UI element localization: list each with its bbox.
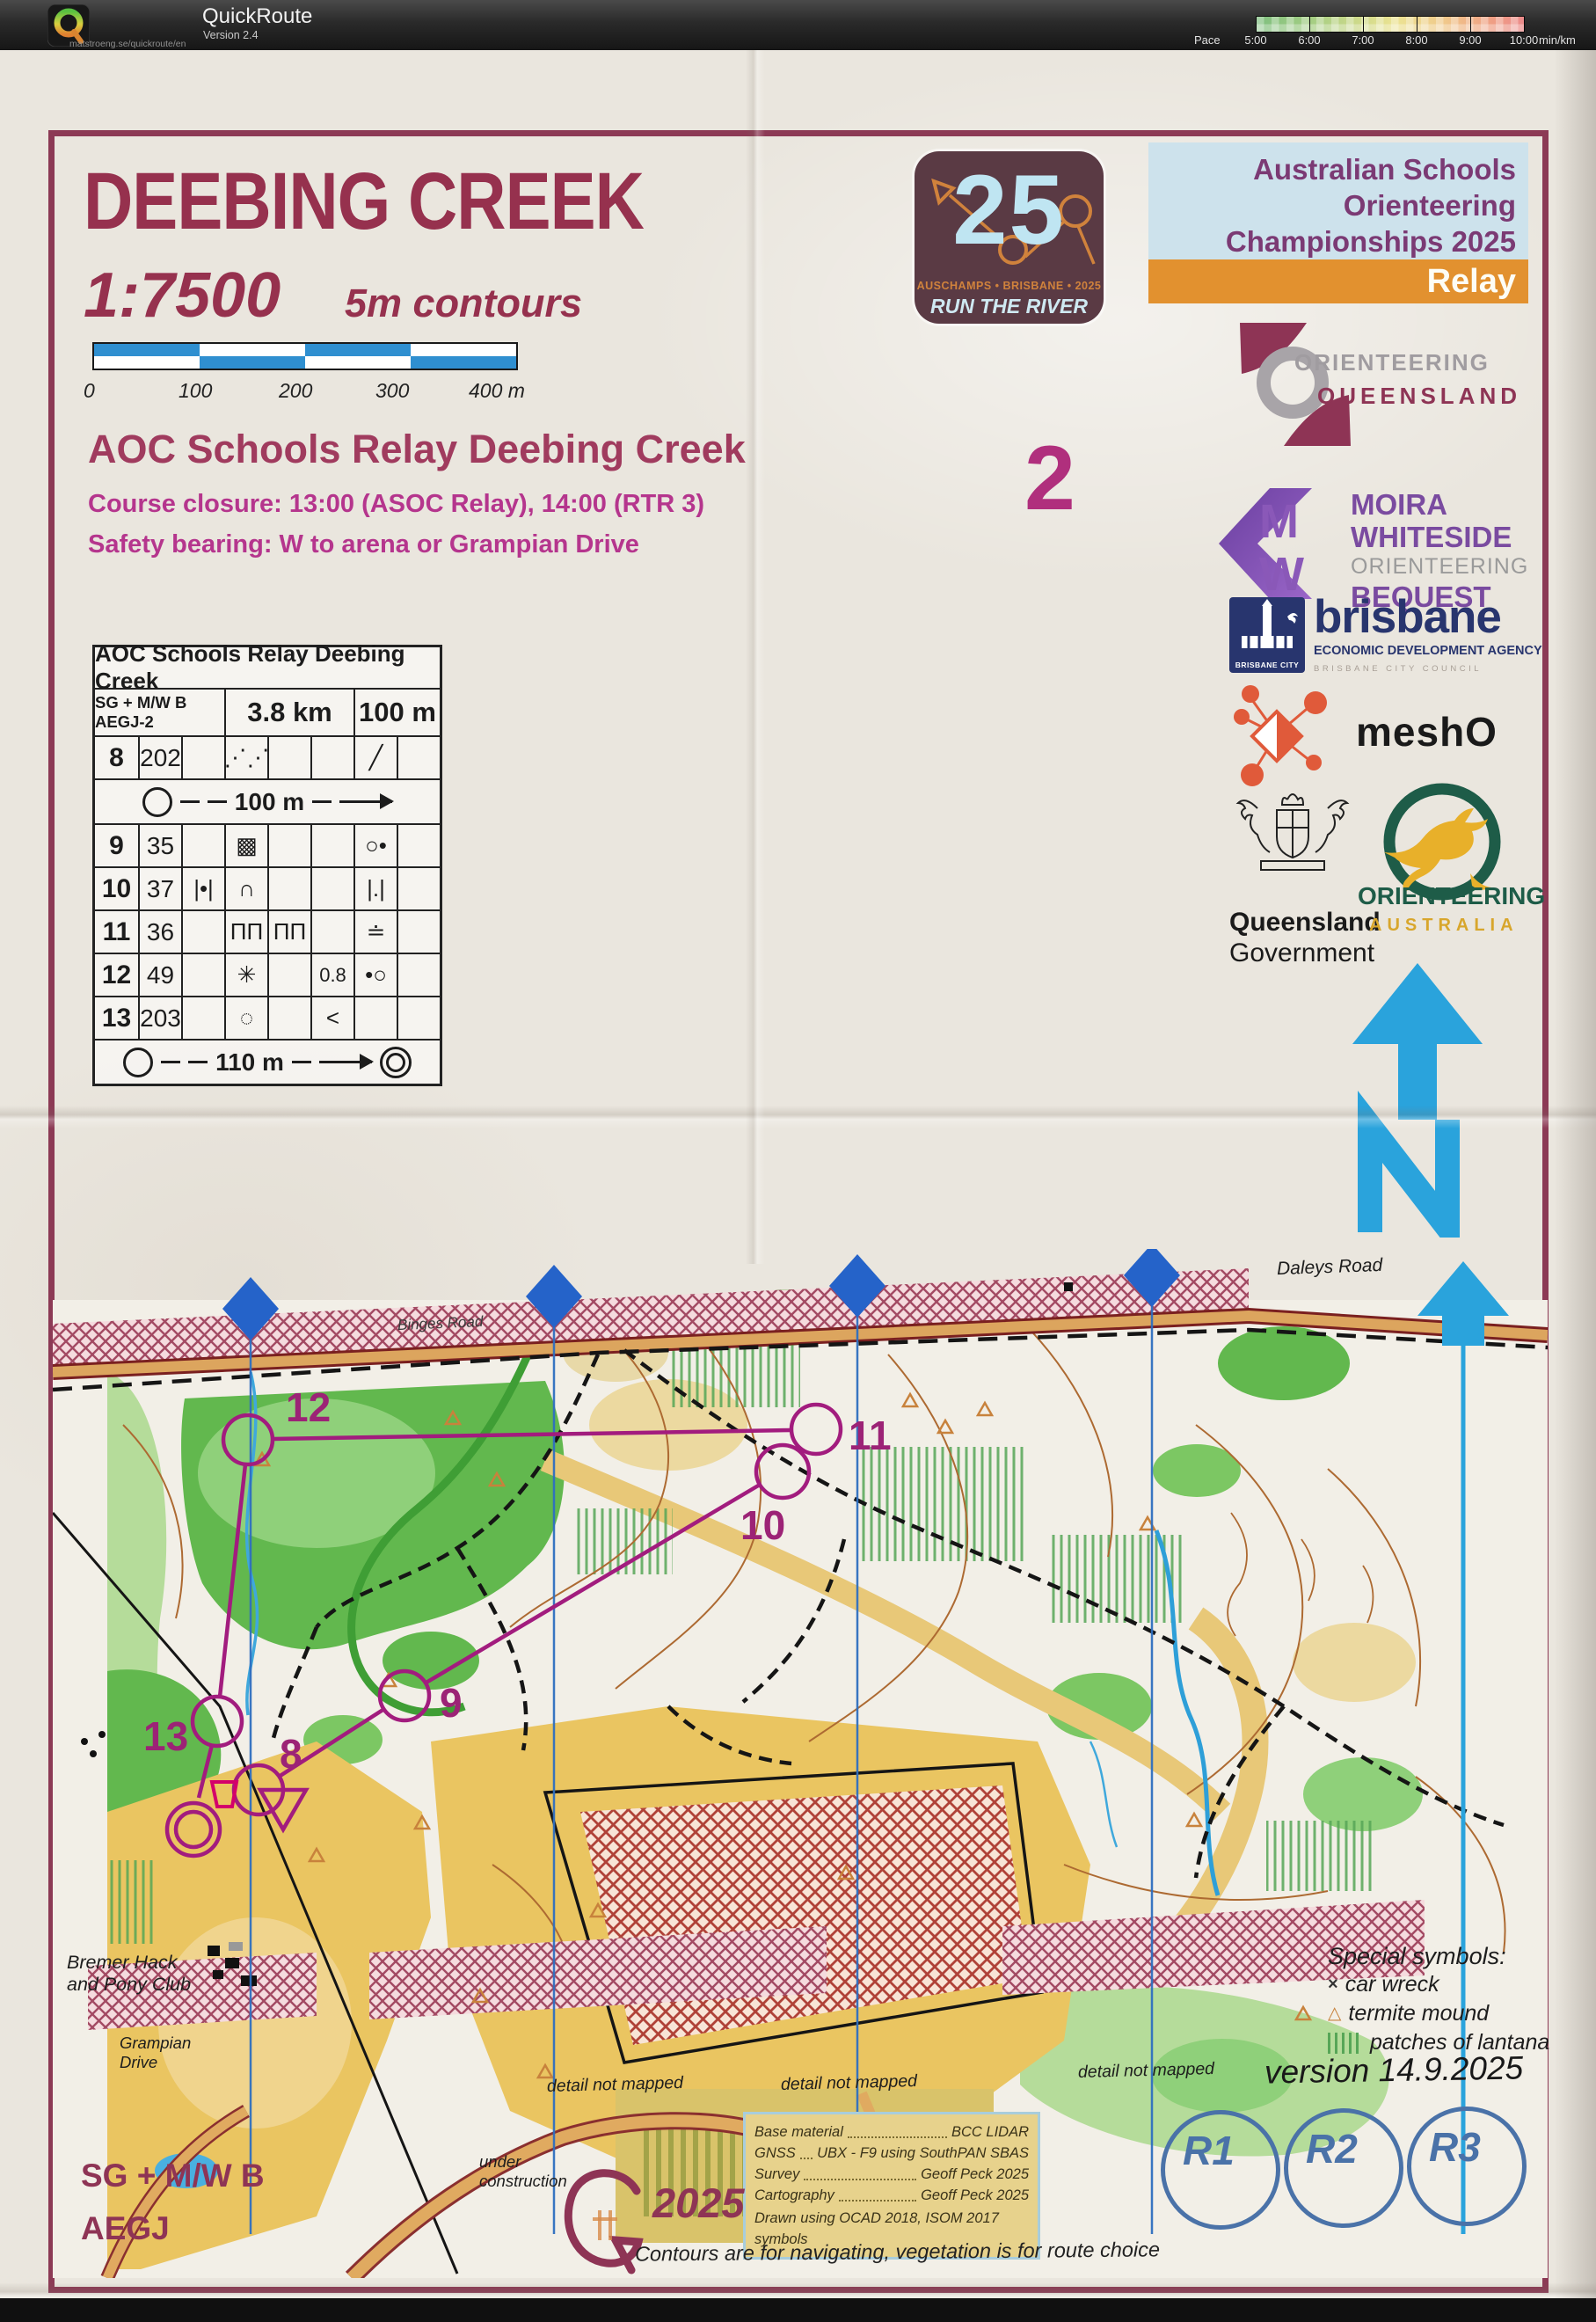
road-label-daleys: Daleys Road — [1277, 1255, 1383, 1280]
control-row: 1249 ✳ 0.8 •○ — [95, 953, 440, 996]
pace-tick: 6:00 — [1298, 33, 1320, 47]
brisbane-city-icon: BRISBANE CITY — [1229, 597, 1305, 673]
pony-club-label: Bremer Hackand Pony Club — [67, 1952, 191, 1996]
credits-box: Base materialBCC LIDAR GNSSUBX - F9 usin… — [743, 2112, 1040, 2260]
app-url: matstroeng.se/quickroute/en — [69, 39, 186, 49]
control-descriptions-card: AOC Schools Relay Deebing Creek SG + M/W… — [92, 645, 442, 1086]
lantana-stripes-icon — [1328, 2033, 1363, 2054]
control-number: 8 — [280, 1731, 302, 1777]
road-label-binges: Binges Road — [397, 1313, 484, 1334]
oa-label-australia: AUSTRALIA — [1369, 916, 1519, 936]
map-scale: 1:7500 — [84, 259, 281, 332]
pace-label: Pace — [1194, 33, 1221, 47]
map-tagline: Contours are for navigating, vegetation … — [635, 2238, 1160, 2266]
car-wreck-icon: × — [1328, 1970, 1338, 1999]
brisbane-badge-label: BRISBANE CITY — [1229, 661, 1305, 669]
contour-interval: 5m contours — [345, 281, 582, 326]
detail-not-mapped-label: detail not mapped — [547, 2073, 684, 2097]
quickroute-window: { "app": { "name": "QuickRoute", "versio… — [0, 0, 1596, 2322]
control-row: 1037 |•|∩ |.| — [95, 866, 440, 909]
oa-label-orienteering: ORIENTEERING — [1358, 882, 1545, 910]
event-title: AOC Schools Relay Deebing Creek — [88, 427, 746, 472]
card-title: AOC Schools Relay Deebing Creek — [95, 647, 440, 688]
map-title: DEEBING CREEK — [84, 156, 644, 248]
pace-separator — [1470, 17, 1471, 32]
oq-label-queensland: QUEENSLAND — [1317, 383, 1521, 410]
logo-25-tagline: RUN THE RIVER — [915, 295, 1104, 318]
control-number: 9 — [440, 1680, 463, 1726]
pace-tick: 5:00 — [1244, 33, 1266, 47]
card-class: SG + M/W B AEGJ-2 — [95, 690, 224, 735]
grampian-drive-label: GrampianDrive — [120, 2034, 191, 2072]
queensland-government-text: Queensland Government — [1229, 907, 1381, 968]
paper-crease — [0, 1106, 1596, 1128]
detail-not-mapped-label: detail not mapped — [1078, 2059, 1215, 2083]
control-row: 935 ▩ ○• — [95, 823, 440, 866]
app-version: Version 2.4 — [203, 29, 259, 41]
brisbane-eda-text: brisbane ECONOMIC DEVELOPMENT AGENCY BRI… — [1314, 594, 1542, 674]
pace-tick: 7:00 — [1352, 33, 1374, 47]
class-label-line1: SG + M/W B — [81, 2158, 265, 2194]
special-symbols-legend: Special symbols: ×car wreck △termite mou… — [1328, 1943, 1549, 2057]
app-title: QuickRoute — [202, 4, 312, 29]
class-label-line2: AEGJ — [81, 2210, 170, 2247]
championships-banner: Australian Schools Orienteering Champion… — [1148, 142, 1528, 267]
scale-bar — [92, 342, 518, 370]
termite-mound-icon: △ — [1328, 1999, 1341, 2028]
control-row: 1136 ΠΠ ΠΠ ≐ — [95, 909, 440, 953]
detail-not-mapped-label: detail not mapped — [781, 2071, 918, 2095]
control-number: 13 — [143, 1713, 188, 1759]
mesho-wordmark: meshO — [1356, 708, 1498, 756]
map-version-label: version 14.9.2025 — [1264, 2049, 1524, 2091]
control-row: 8202 ⋰⋰ ╱ — [95, 735, 440, 778]
under-construction-label: underconstruction — [479, 2152, 567, 2191]
control-number: 11 — [849, 1413, 892, 1458]
pace-separator — [1417, 17, 1417, 32]
scanned-map-sheet[interactable]: DEEBING CREEK 1:7500 5m contours 0 100 2… — [0, 50, 1596, 2298]
paper-edge-shadow — [1554, 50, 1596, 2298]
control-number: 10 — [740, 1502, 785, 1548]
pace-tick: 10:00 — [1510, 33, 1539, 47]
north-arrow-icon — [1344, 963, 1491, 1238]
leg-spacer-row: 100 m — [95, 778, 440, 823]
pace-tick: 9:00 — [1459, 33, 1481, 47]
control-row: 13203 ◌ < — [95, 996, 440, 1039]
paper-crease — [746, 50, 765, 1264]
safety-bearing-note: Safety bearing: W to arena or Grampian D… — [88, 530, 639, 559]
pace-gradient-scale — [1256, 16, 1525, 33]
relay-leg-circle-r1: R1 — [1161, 2110, 1280, 2230]
g-logo-year: 2025 — [652, 2179, 745, 2227]
control-number: 12 — [286, 1384, 331, 1430]
relay-band: Relay — [1148, 259, 1528, 303]
app-toolbar: QuickRoute Version 2.4 matstroeng.se/qui… — [0, 0, 1596, 51]
window-background-strip — [0, 2298, 1596, 2322]
relay-leg-circle-r2: R2 — [1284, 2108, 1403, 2228]
logo-25-number: 25 — [915, 153, 1104, 267]
svg-text:M: M — [1259, 495, 1299, 548]
queensland-government-crest-icon — [1231, 773, 1354, 903]
course-closure-note: Course closure: 13:00 (ASOC Relay), 14:0… — [88, 490, 704, 519]
run-the-river-logo: 25 AUSCHAMPS • BRISBANE • 2025 RUN THE R… — [915, 151, 1104, 324]
card-climb: 100 m — [353, 690, 440, 735]
pace-separator — [1363, 17, 1364, 32]
card-distance: 3.8 km — [224, 690, 353, 735]
logo-25-subtitle: AUSCHAMPS • BRISBANE • 2025 — [915, 280, 1104, 292]
pace-tick: 8:00 — [1405, 33, 1427, 47]
oq-label-orienteering: ORIENTEERING — [1294, 349, 1490, 376]
finish-spacer-row: 110 m — [95, 1039, 440, 1084]
relay-leg-circle-r3: R3 — [1407, 2107, 1527, 2226]
pace-separator — [1309, 17, 1310, 32]
moira-whiteside-icon: M W — [1219, 483, 1344, 604]
svg-text:W: W — [1259, 548, 1304, 601]
paper-crease — [0, 2282, 1596, 2298]
pace-unit: min/km — [1539, 33, 1576, 47]
relay-leg-number: 2 — [1024, 427, 1075, 531]
